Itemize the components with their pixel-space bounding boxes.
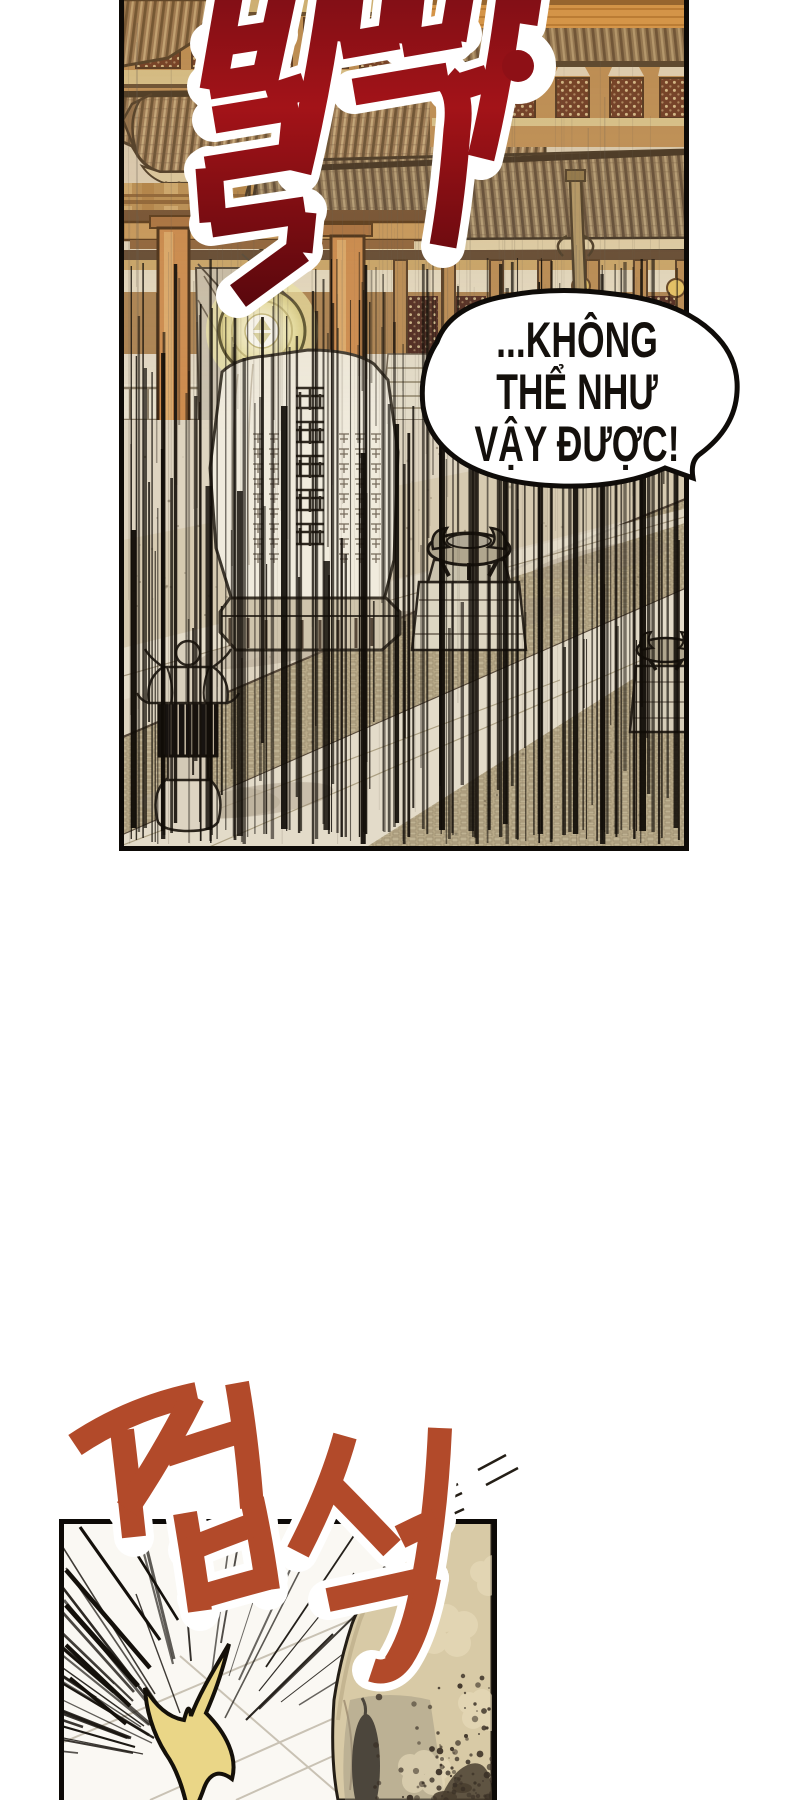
- svg-text:THỂ NHƯ: THỂ NHƯ: [496, 364, 658, 421]
- svg-text:...KHÔNG: ...KHÔNG: [496, 312, 658, 369]
- svg-text:VẬY ĐƯỢC!: VẬY ĐƯỢC!: [474, 416, 679, 473]
